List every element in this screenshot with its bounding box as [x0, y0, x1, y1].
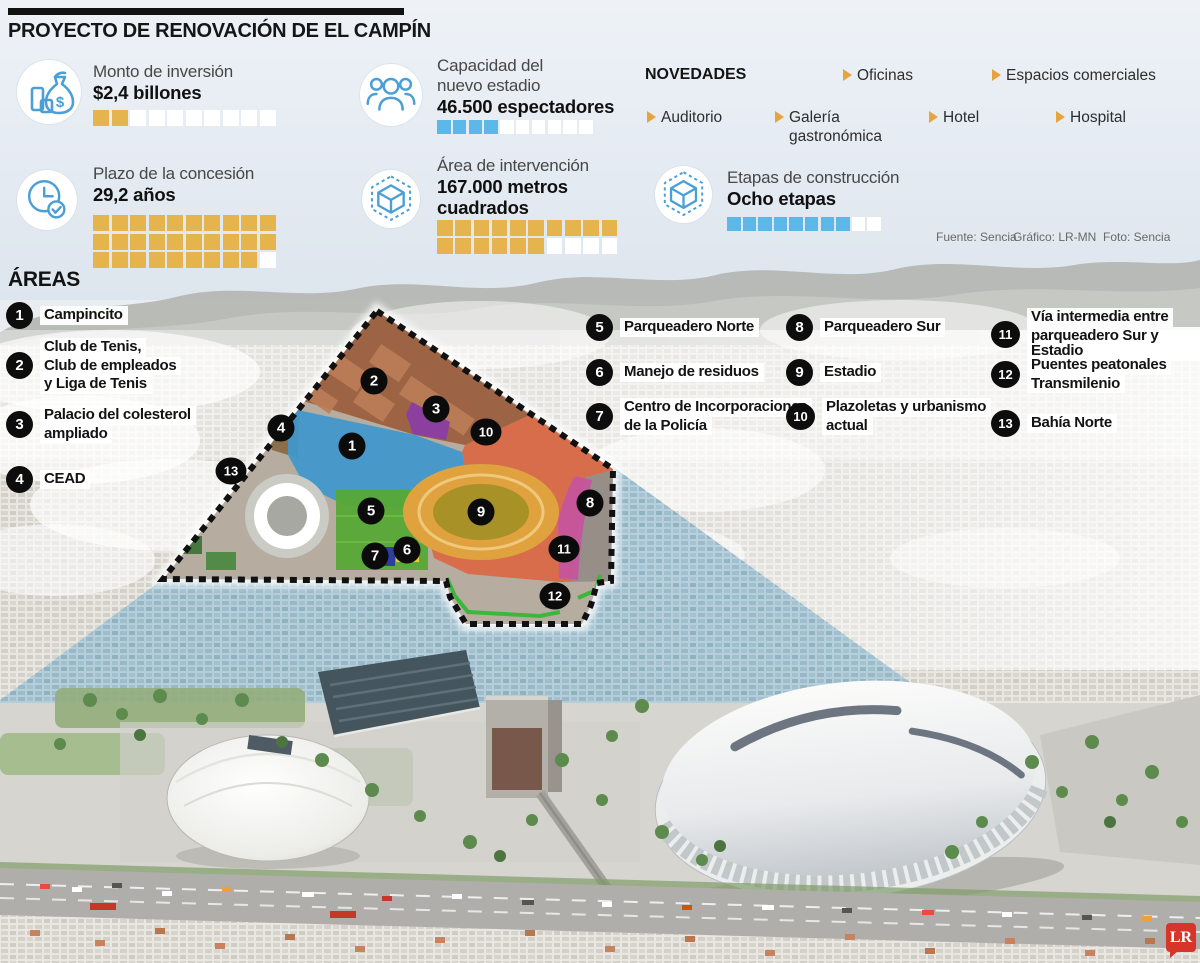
legend-label-line: Estadio	[820, 363, 881, 382]
legend-label-line: Parqueadero Norte	[620, 318, 759, 337]
stat-label-line: nuevo estadio	[437, 76, 614, 96]
legend-number-badge: 2	[6, 352, 33, 379]
square-filled	[204, 252, 220, 268]
legend-label-line: Club de empleados	[40, 357, 181, 376]
legend-label-line: Plazoletas y urbanismo	[822, 398, 991, 417]
square-filled	[455, 238, 471, 254]
legend-number-badge: 7	[586, 403, 613, 430]
background-aerial-art	[0, 0, 1200, 963]
areas-heading: ÁREAS	[8, 268, 80, 292]
square-filled	[223, 234, 239, 250]
map-marker-4: 4	[268, 415, 295, 442]
square-filled	[565, 220, 581, 236]
square-filled	[167, 252, 183, 268]
legend-label: Vía intermedia entreparqueadero Sur y Es…	[1027, 308, 1200, 361]
legend-item-8: 8Parqueadero Sur	[786, 314, 945, 341]
square-empty	[583, 238, 599, 254]
novedad-item: Oficinas	[843, 66, 953, 85]
square-empty	[260, 110, 276, 126]
legend-item-2: 2Club de Tenis,Club de empleadosy Liga d…	[6, 338, 181, 394]
square-empty	[500, 120, 514, 134]
legend-label: CEAD	[40, 470, 90, 489]
legend-label-line: Campincito	[40, 306, 128, 325]
arrow-icon	[1056, 111, 1065, 123]
square-empty	[149, 110, 165, 126]
svg-text:$: $	[56, 94, 65, 111]
square-filled	[727, 217, 741, 231]
progress-squares	[93, 215, 278, 271]
square-empty	[565, 238, 581, 254]
square-filled	[186, 215, 202, 231]
legend-number-badge: 1	[6, 302, 33, 329]
legend-label: Puentes peatonalesTransmilenio	[1027, 356, 1171, 393]
square-filled	[437, 238, 453, 254]
square-empty	[516, 120, 530, 134]
map-marker-5: 5	[358, 498, 385, 525]
arrow-icon	[647, 111, 656, 123]
square-filled	[774, 217, 788, 231]
legend-number-badge: 3	[6, 411, 33, 438]
legend-item-10: 10Plazoletas y urbanismoactual	[786, 398, 991, 435]
title-rule	[8, 8, 404, 15]
legend-label-line: Parqueadero Sur	[820, 318, 945, 337]
stat-plazo: Plazo de la concesión 29,2 años	[17, 164, 278, 271]
square-filled	[112, 252, 128, 268]
stat-etapas: Etapas de construcción Ocho etapas	[655, 166, 899, 233]
legend-number-badge: 8	[786, 314, 813, 341]
novedad-item: Hospital	[1056, 108, 1166, 127]
square-filled	[437, 220, 453, 236]
legend-label: Club de Tenis,Club de empleadosy Liga de…	[40, 338, 181, 394]
novedad-item: Galería gastronómica	[775, 108, 893, 146]
square-filled	[204, 215, 220, 231]
square-filled	[821, 217, 835, 231]
square-filled	[805, 217, 819, 231]
square-filled	[743, 217, 757, 231]
square-filled	[93, 234, 109, 250]
square-filled	[469, 120, 483, 134]
map-marker-6: 6	[394, 537, 421, 564]
legend-label: Parqueadero Sur	[820, 318, 945, 337]
square-filled	[602, 220, 618, 236]
square-empty	[602, 238, 618, 254]
legend-label: Parqueadero Norte	[620, 318, 759, 337]
stat-label-line: Etapas de construcción	[727, 168, 899, 187]
legend-label-line: Club de Tenis,	[40, 338, 146, 357]
legend-label-line: Transmilenio	[1027, 375, 1125, 394]
legend-item-13: 13Bahía Norte	[991, 410, 1117, 437]
map-marker-10: 10	[471, 419, 502, 446]
square-filled	[112, 110, 128, 126]
legend-number-badge: 13	[991, 410, 1020, 437]
novedad-label: Espacios comerciales	[1006, 66, 1156, 85]
square-filled	[260, 234, 276, 250]
novedad-item: Espacios comerciales	[992, 66, 1172, 85]
square-empty	[130, 110, 146, 126]
legend-label-line: actual	[822, 417, 873, 436]
square-filled	[149, 234, 165, 250]
legend-label-line: ampliado	[40, 425, 112, 444]
square-filled	[547, 220, 563, 236]
legend-number-badge: 4	[6, 466, 33, 493]
legend-label-line: Puentes peatonales	[1027, 356, 1171, 375]
legend-label-line: Bahía Norte	[1027, 414, 1117, 433]
legend-item-3: 3Palacio del colesterolampliado	[6, 406, 196, 443]
map-marker-7: 7	[362, 543, 389, 570]
map-marker-13: 13	[216, 458, 247, 485]
progress-squares	[437, 120, 595, 136]
legend-label: Estadio	[820, 363, 881, 382]
legend-item-11: 11Vía intermedia entreparqueadero Sur y …	[991, 308, 1200, 361]
legend-item-9: 9Estadio	[786, 359, 881, 386]
map-marker-1: 1	[339, 433, 366, 460]
square-empty	[186, 110, 202, 126]
square-filled	[510, 238, 526, 254]
people-icon	[360, 64, 422, 126]
square-filled	[223, 215, 239, 231]
square-filled	[112, 215, 128, 231]
map-marker-3: 3	[423, 396, 450, 423]
legend-label-line: CEAD	[40, 470, 90, 489]
square-filled	[492, 238, 508, 254]
novedad-label: Hotel	[943, 108, 979, 127]
square-filled	[528, 238, 544, 254]
square-filled	[453, 120, 467, 134]
square-filled	[836, 217, 850, 231]
stat-value-line: 167.000 metros	[437, 176, 620, 197]
stat-label-line: Área de intervención	[437, 156, 589, 175]
stat-label-line: Capacidad del	[437, 56, 614, 76]
stat-value-line: $2,4 billones	[93, 82, 201, 103]
legend-item-4: 4CEAD	[6, 466, 90, 493]
novedad-label: Hospital	[1070, 108, 1126, 127]
legend-label-line: Palacio del colesterol	[40, 406, 196, 425]
square-filled	[204, 234, 220, 250]
square-filled	[167, 234, 183, 250]
legend-label-line: y Liga de Tenis	[40, 375, 152, 394]
legend-item-12: 12Puentes peatonalesTransmilenio	[991, 356, 1171, 393]
square-filled	[484, 120, 498, 134]
credit-foto: Foto: Sencia	[1103, 230, 1170, 244]
square-filled	[112, 234, 128, 250]
square-filled	[510, 220, 526, 236]
square-empty	[204, 110, 220, 126]
legend-number-badge: 5	[586, 314, 613, 341]
square-empty	[532, 120, 546, 134]
square-empty	[852, 217, 866, 231]
arrow-icon	[775, 111, 784, 123]
square-filled	[455, 220, 471, 236]
square-filled	[583, 220, 599, 236]
legend-number-badge: 10	[786, 403, 815, 430]
legend-number-badge: 9	[786, 359, 813, 386]
money-bag-icon: $	[17, 60, 81, 124]
legend-item-7: 7Centro de Incorporacionesde la Policía	[586, 398, 812, 435]
cube-icon	[655, 166, 712, 223]
square-filled	[149, 215, 165, 231]
square-empty	[547, 238, 563, 254]
legend-label: Campincito	[40, 306, 128, 325]
square-empty	[241, 110, 257, 126]
novedad-label: Auditorio	[661, 108, 722, 127]
legend-label-line: Manejo de residuos	[620, 363, 764, 382]
clock-icon	[17, 170, 77, 230]
arrow-icon	[843, 69, 852, 81]
square-filled	[130, 215, 146, 231]
square-filled	[437, 120, 451, 134]
square-empty	[563, 120, 577, 134]
novedades-heading: NOVEDADES	[645, 66, 746, 84]
legend-number-badge: 12	[991, 361, 1020, 388]
square-filled	[758, 217, 772, 231]
square-filled	[167, 215, 183, 231]
map-marker-8: 8	[577, 490, 604, 517]
stat-value-line: Ocho etapas	[727, 188, 836, 209]
legend-item-1: 1Campincito	[6, 302, 128, 329]
legend-item-5: 5Parqueadero Norte	[586, 314, 759, 341]
novedad-label: Oficinas	[857, 66, 913, 85]
novedad-item: Auditorio	[647, 108, 757, 127]
map-marker-11: 11	[549, 536, 580, 563]
stat-label-line: Monto de inversión	[93, 62, 233, 81]
legend-label-line: Vía intermedia entre	[1027, 308, 1173, 327]
map-marker-12: 12	[540, 583, 571, 610]
legend-label: Bahía Norte	[1027, 414, 1117, 433]
novedad-label: Galería gastronómica	[789, 108, 893, 146]
square-filled	[241, 234, 257, 250]
legend-label: Palacio del colesterolampliado	[40, 406, 196, 443]
legend-item-6: 6Manejo de residuos	[586, 359, 764, 386]
lr-logo: LR	[1166, 923, 1196, 952]
square-filled	[241, 252, 257, 268]
credit-grafico: Gráfico: LR-MN	[1013, 230, 1096, 244]
legend-label: Centro de Incorporacionesde la Policía	[620, 398, 812, 435]
square-empty	[223, 110, 239, 126]
square-filled	[789, 217, 803, 231]
stat-capacidad: Capacidad del nuevo estadio 46.500 espec…	[360, 56, 614, 136]
square-filled	[474, 238, 490, 254]
square-filled	[241, 215, 257, 231]
map-marker-2: 2	[361, 368, 388, 395]
square-empty	[867, 217, 881, 231]
arrow-icon	[929, 111, 938, 123]
legend-label: Manejo de residuos	[620, 363, 764, 382]
stat-monto: $ Monto de inversión $2,4 billones	[17, 60, 278, 129]
stat-value-line: cuadrados	[437, 197, 620, 218]
square-filled	[130, 252, 146, 268]
cube-icon	[362, 170, 420, 228]
page-title: PROYECTO DE RENOVACIÓN DE EL CAMPÍN	[8, 20, 431, 43]
novedad-item: Hotel	[929, 108, 1029, 127]
square-filled	[186, 252, 202, 268]
legend-label-line: Centro de Incorporaciones	[620, 398, 812, 417]
square-filled	[149, 252, 165, 268]
stat-area: Área de intervención 167.000 metros cuad…	[362, 156, 620, 257]
stat-label-line: Plazo de la concesión	[93, 164, 254, 183]
legend-label-line: de la Policía	[620, 417, 712, 436]
infographic-canvas: PROYECTO DE RENOVACIÓN DE EL CAMPÍN $ Mo…	[0, 0, 1200, 963]
progress-squares	[727, 217, 883, 233]
square-empty	[548, 120, 562, 134]
square-filled	[492, 220, 508, 236]
stat-value-line: 46.500 espectadores	[437, 96, 614, 117]
square-empty	[260, 252, 276, 268]
legend-number-badge: 11	[991, 321, 1020, 348]
legend-number-badge: 6	[586, 359, 613, 386]
stat-value-line: 29,2 años	[93, 184, 176, 205]
progress-squares	[437, 220, 620, 257]
square-filled	[93, 110, 109, 126]
square-filled	[528, 220, 544, 236]
square-filled	[260, 215, 276, 231]
square-empty	[579, 120, 593, 134]
credit-fuente: Fuente: Sencia	[936, 230, 1017, 244]
progress-squares	[93, 110, 278, 129]
square-filled	[223, 252, 239, 268]
square-filled	[474, 220, 490, 236]
square-filled	[93, 252, 109, 268]
square-empty	[167, 110, 183, 126]
square-filled	[130, 234, 146, 250]
arrow-icon	[992, 69, 1001, 81]
legend-label: Plazoletas y urbanismoactual	[822, 398, 991, 435]
map-marker-9: 9	[468, 499, 495, 526]
square-filled	[93, 215, 109, 231]
square-filled	[186, 234, 202, 250]
